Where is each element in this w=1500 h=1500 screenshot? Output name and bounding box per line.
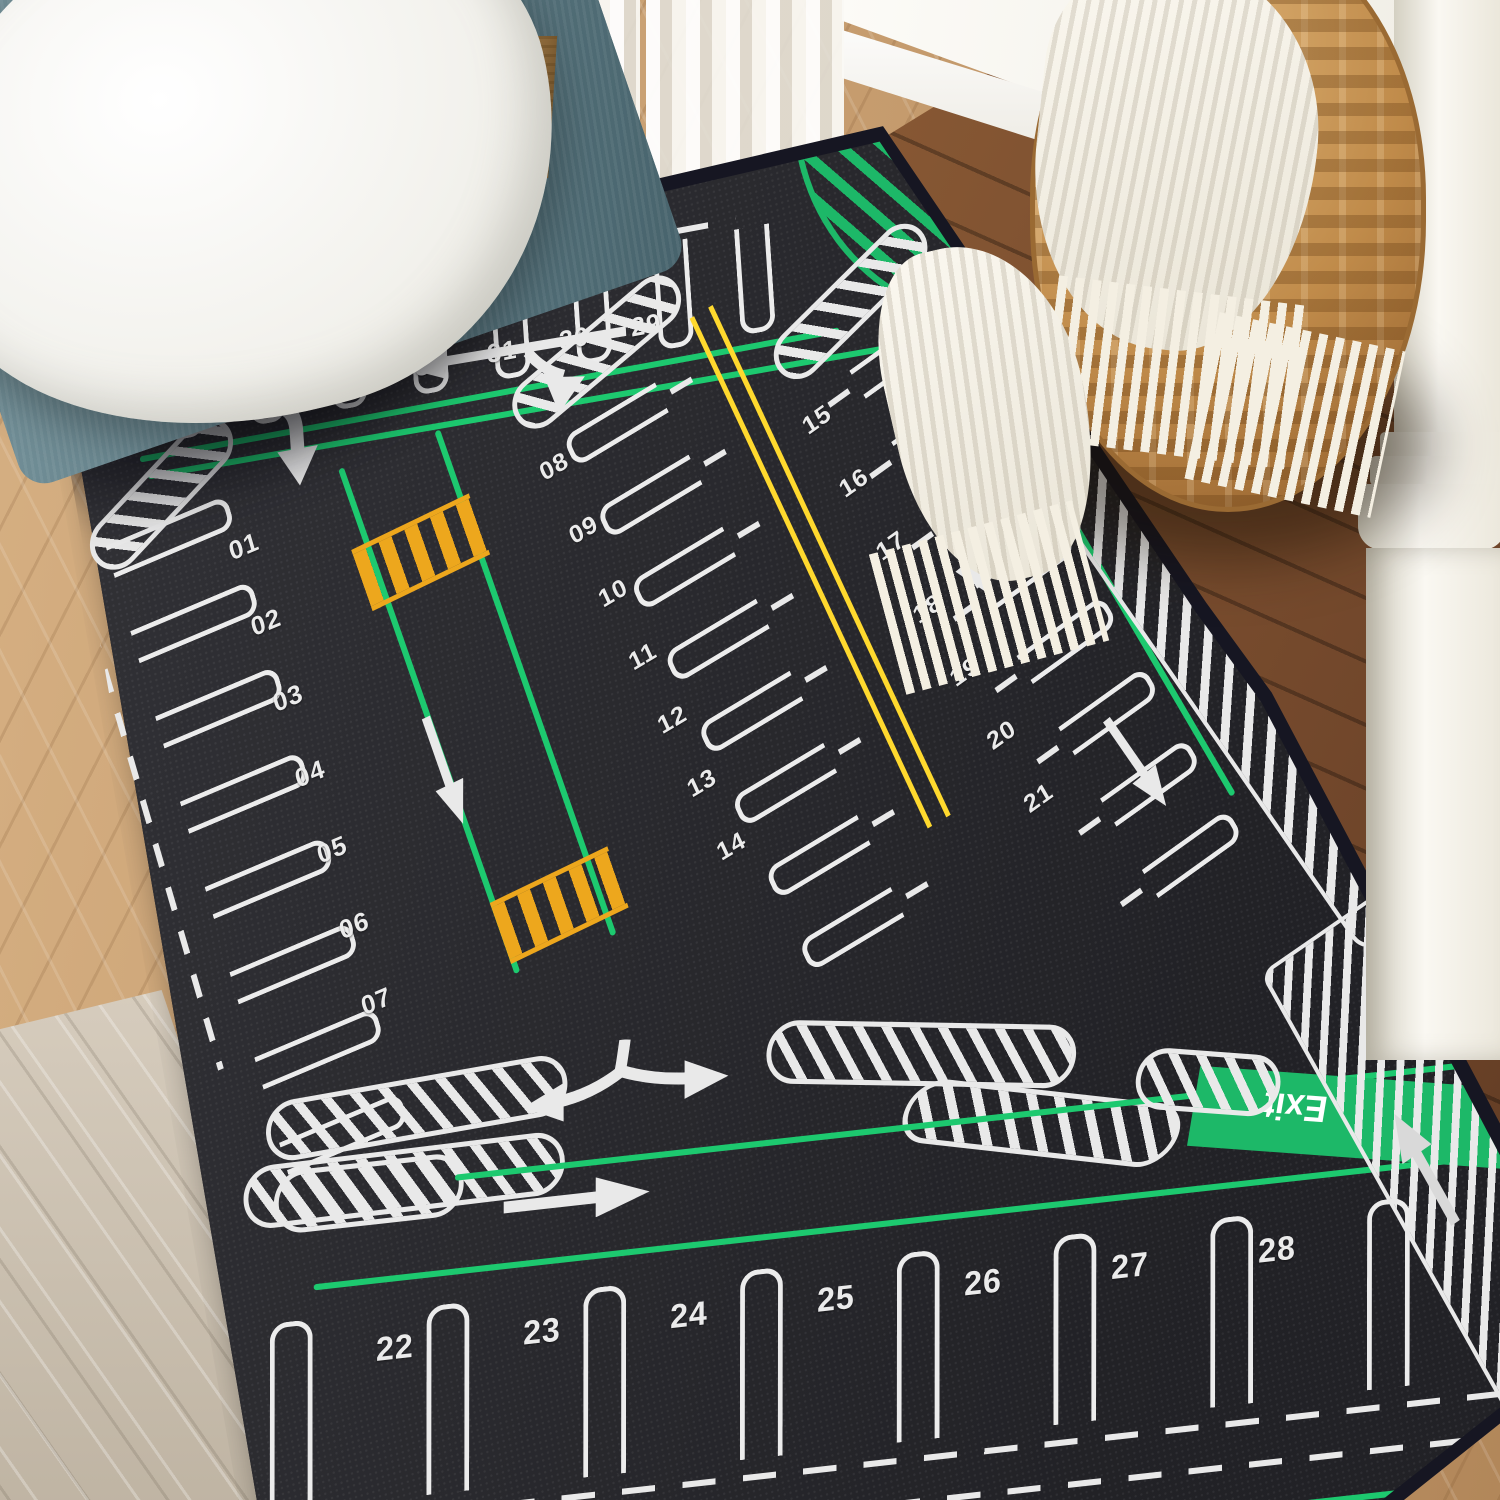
spot-divider [663,599,770,684]
dash [869,460,892,479]
spot-divider [764,815,871,900]
dash [1036,745,1059,764]
dash [1120,888,1143,907]
dash [1078,816,1101,835]
spot-divider [798,887,905,972]
fork-arrow-icon [513,1028,732,1163]
column-plinth [1366,548,1500,1060]
dash [827,388,850,407]
spot-divider [1142,809,1244,898]
dash [994,674,1017,693]
dash [670,377,694,395]
dash [770,593,794,611]
spot-divider [630,527,737,612]
spot-divider [734,223,776,336]
dash [737,521,761,539]
spot-divider [731,743,838,828]
dash [804,665,828,683]
crosswalk [490,846,629,964]
dash [838,737,862,755]
hatched-endcap [1131,1046,1285,1118]
spot-divider [697,671,804,756]
crosswalk [351,493,490,611]
spot-divider [270,1319,313,1500]
spot-divider [596,454,703,539]
dash [703,449,727,467]
down-arrow-icon [407,711,476,833]
room-scene: 35 34 33 32 31 30 29 [0,0,1500,1500]
dash [871,809,895,827]
dash [905,881,929,899]
hatched-endcap [763,1020,1080,1089]
